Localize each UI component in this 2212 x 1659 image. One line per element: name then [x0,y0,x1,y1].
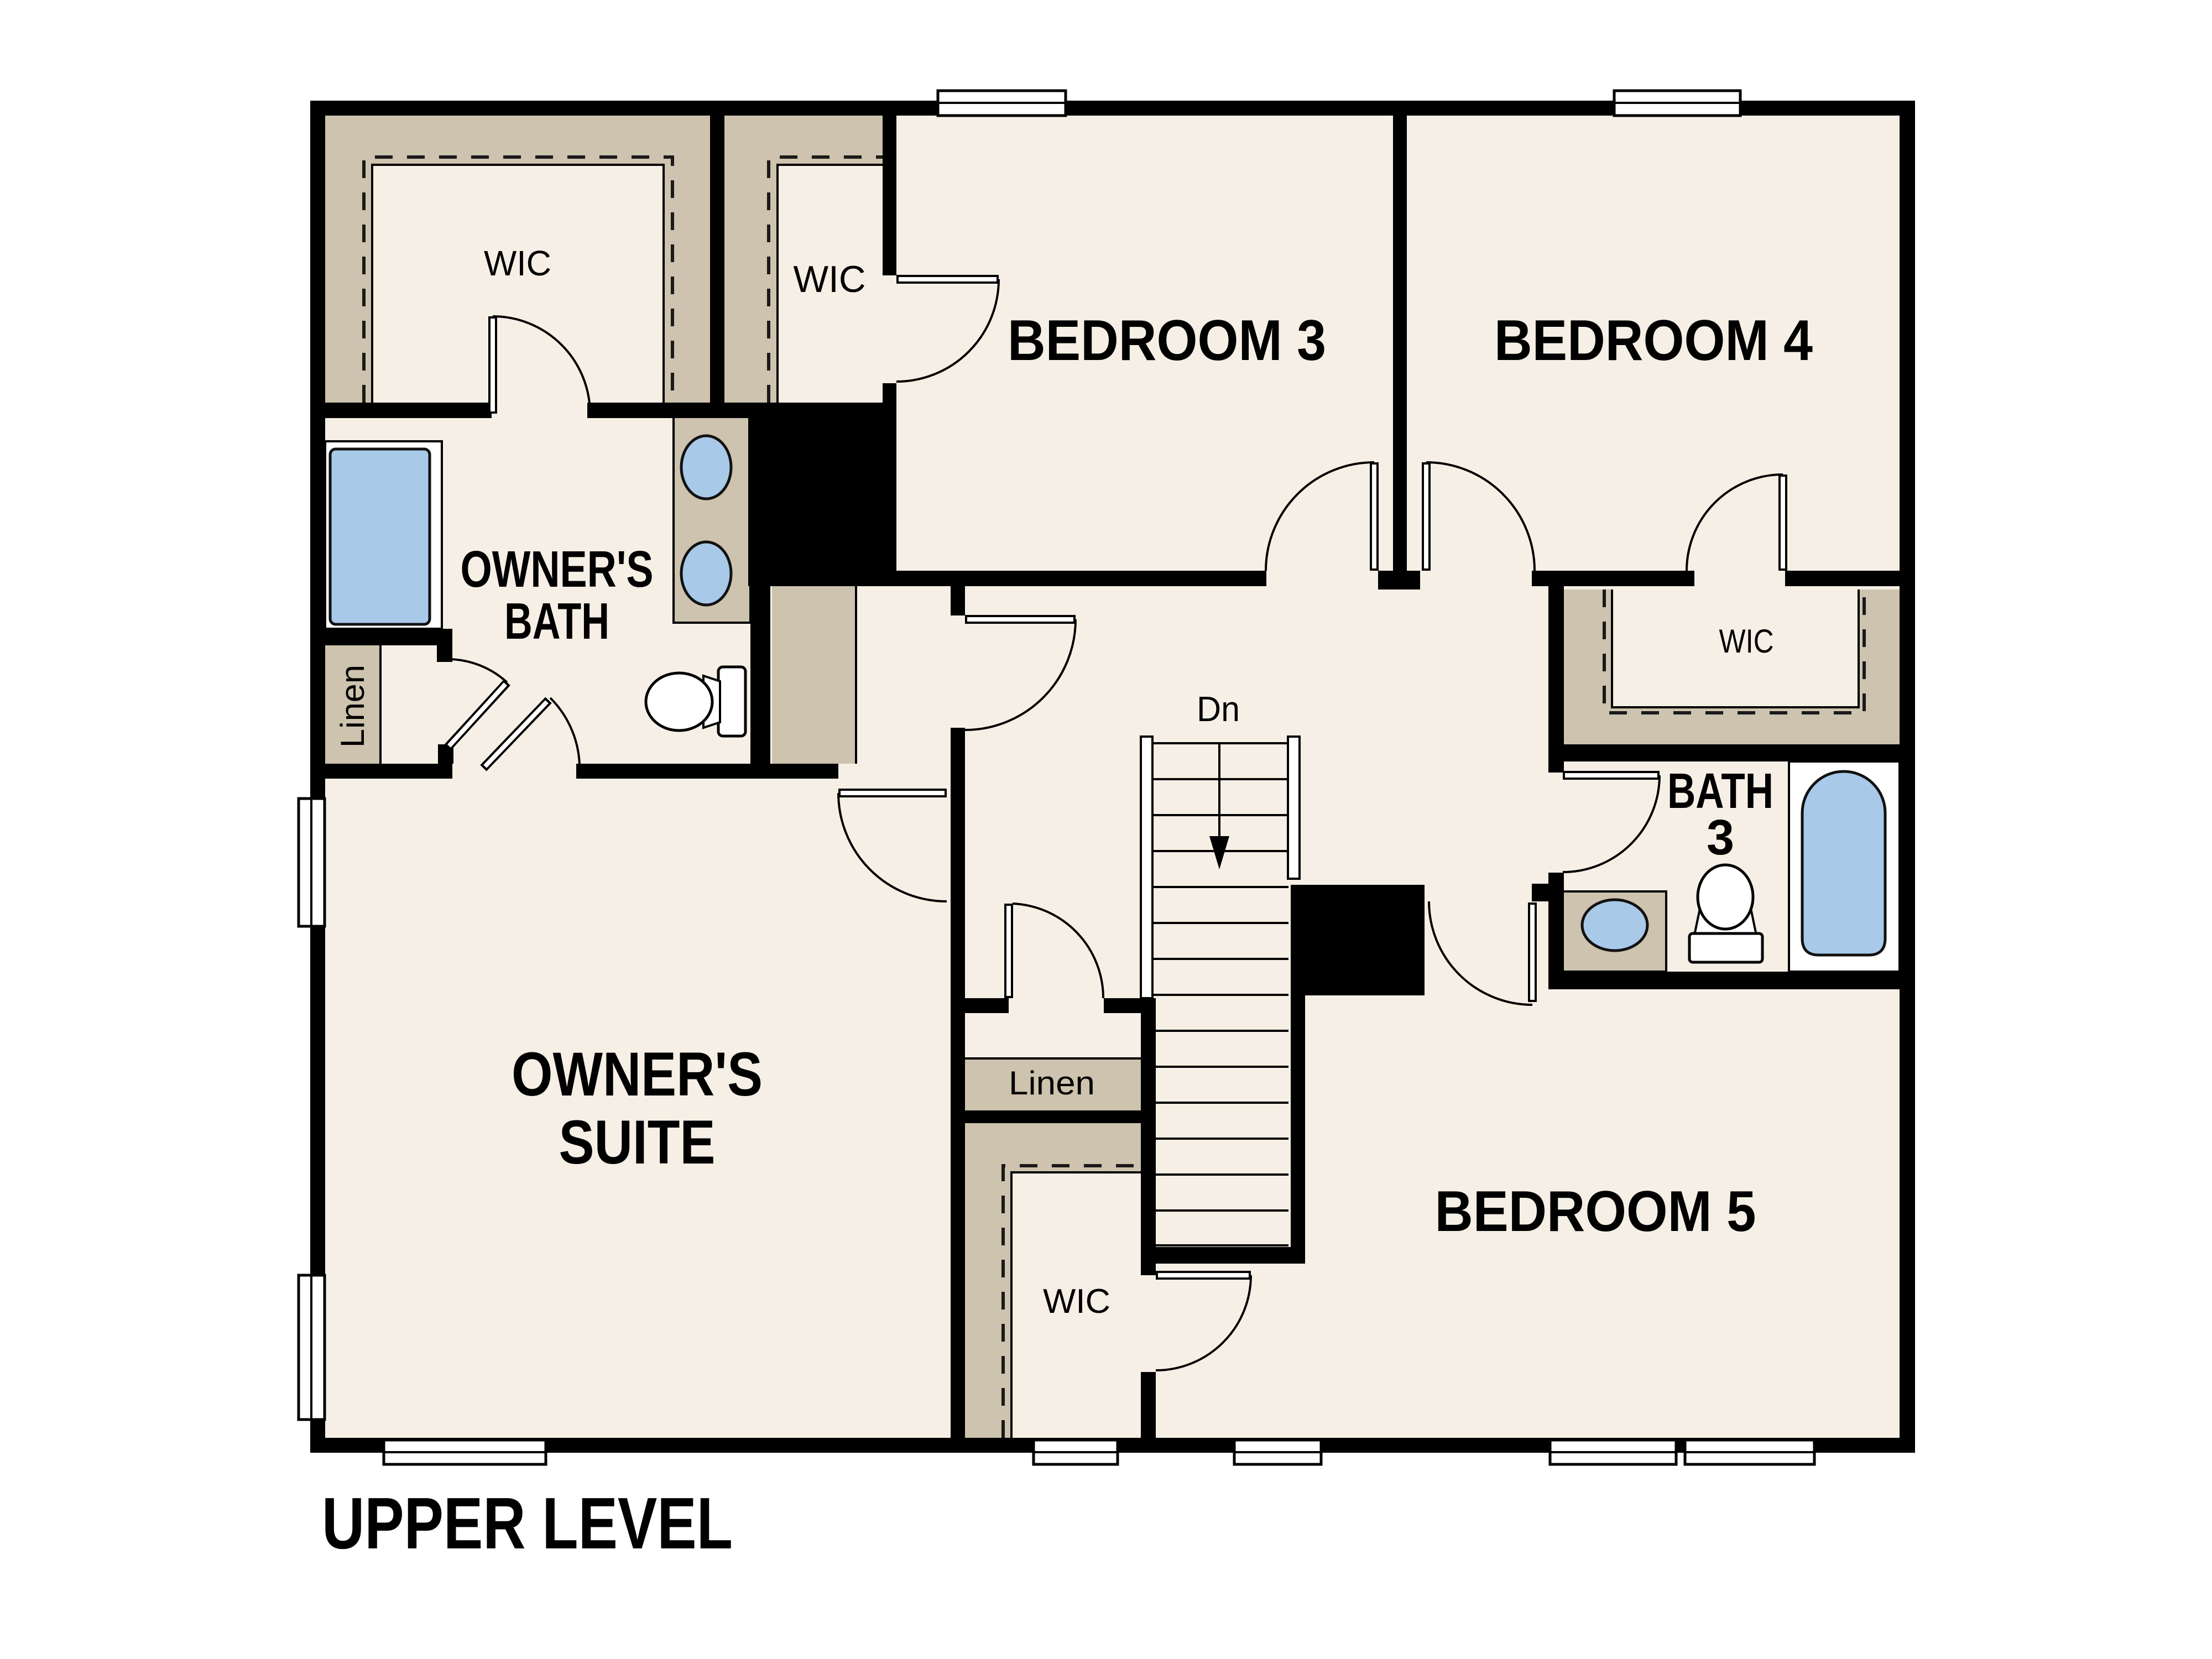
svg-text:BEDROOM 4: BEDROOM 4 [1494,309,1813,373]
svg-text:SUITE: SUITE [559,1108,716,1177]
svg-text:UPPER LEVEL: UPPER LEVEL [322,1483,733,1564]
svg-text:OWNER'S: OWNER'S [461,540,654,598]
svg-text:3: 3 [1707,810,1734,865]
svg-text:OWNER'S: OWNER'S [512,1040,763,1109]
svg-text:WIC: WIC [1719,623,1774,660]
svg-text:Linen: Linen [334,665,371,748]
svg-text:Dn: Dn [1197,689,1240,729]
svg-text:BEDROOM 5: BEDROOM 5 [1435,1180,1756,1244]
svg-text:BEDROOM 3: BEDROOM 3 [1008,309,1326,373]
svg-text:WIC: WIC [484,243,551,283]
svg-text:WIC: WIC [1043,1282,1110,1321]
svg-text:Linen: Linen [1009,1065,1095,1102]
svg-text:BATH: BATH [504,592,609,650]
svg-text:WIC: WIC [794,258,866,300]
